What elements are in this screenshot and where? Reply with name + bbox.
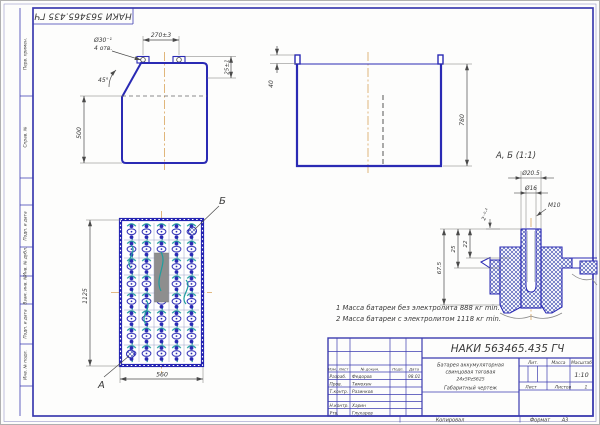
top-dim-length: 1125 xyxy=(82,288,89,304)
margin-label-perv-primen: Перв. примен. xyxy=(23,38,29,70)
hdr-data: Дата xyxy=(408,366,420,371)
row-name-tkontr: Разинков xyxy=(352,389,373,395)
row-name-utv: Глухарев xyxy=(352,410,373,416)
row-name-prov: Тимохин xyxy=(352,381,372,387)
sheets-label: Листов xyxy=(554,384,572,390)
row-name-razrab: Федоров xyxy=(352,374,372,380)
side-lip-left xyxy=(295,55,300,64)
detail-thread-label: M10 xyxy=(548,203,561,209)
detail-dim-25: 25 xyxy=(451,245,457,253)
detail-title: А, Б (1:1) xyxy=(495,151,536,161)
front-hole-qty-label: 4 отв. xyxy=(94,45,112,52)
front-chamfer-label: 45° xyxy=(98,77,109,84)
top-dim-width: 560 xyxy=(156,372,168,379)
format-value: А3 xyxy=(561,418,569,424)
row-date-razrab: 98.01 xyxy=(408,374,421,380)
part-name-line2: свинцовая тяговая xyxy=(446,370,496,376)
note-line-2: 2 Масса батареи с электролитом 1118 кг m… xyxy=(336,315,501,323)
mass-label: Масса xyxy=(552,360,566,366)
front-dim-height: 500 xyxy=(76,127,83,139)
side-lip-right xyxy=(438,55,443,64)
row-role-razrab: Разраб. xyxy=(330,374,347,380)
hdr-list: Лист xyxy=(338,366,349,371)
detail-dim-22: 22 xyxy=(463,240,469,248)
detail-dim-67-5: 67.5 xyxy=(437,261,443,274)
margin-label-sprav-no: Справ. № xyxy=(23,126,29,147)
top-stamp: НАКИ 563465.435 ГЧ xyxy=(34,11,131,21)
margin-label-podp-data-1: Подп. и дата xyxy=(23,211,29,241)
view-label-a: А xyxy=(97,380,105,391)
drawing-type: Габаритный чертеж xyxy=(444,386,498,392)
row-role-nkontr: Н.контр. xyxy=(330,403,349,409)
note-line-1: 1 Масса батареи без электролита 888 кг m… xyxy=(336,304,500,312)
row-name-nkontr: Харин xyxy=(351,403,366,409)
detail-dia-outer: Ø20.5 xyxy=(521,170,540,177)
terminal-lug-left xyxy=(500,247,521,313)
side-dim-lip: 40 xyxy=(268,80,275,88)
front-dim-terminal: 25±1 xyxy=(225,59,231,74)
hdr-izm: Изм. xyxy=(328,366,337,371)
battery-nameplate xyxy=(155,253,169,302)
main-terminal-b xyxy=(189,227,197,235)
view-label-b: Б xyxy=(219,196,226,207)
front-hole-dia-label: Ø30⁻¹ xyxy=(93,37,113,44)
scale-label: Масштаб xyxy=(571,360,592,366)
margin-label-inv-podl: Инв. № подл. xyxy=(23,350,29,380)
stamp-designation: НАКИ 563465.435 ГЧ xyxy=(34,11,131,21)
margin-label-podp-data-2: Подп. и дата xyxy=(23,309,29,339)
front-dim-holes-pitch: 270±3 xyxy=(151,32,171,39)
drawing-sheet: Перв. примен. Справ. № Подп. и дата Инв.… xyxy=(0,0,600,425)
margin-label-inv-dubl: Инв. № дубл. xyxy=(23,247,29,276)
lit-label: Лит. xyxy=(527,360,538,366)
row-role-utv: Утв. xyxy=(330,410,339,416)
sheet-label: Лист xyxy=(524,384,537,390)
row-role-tkontr: Т.контр. xyxy=(330,389,349,395)
designation: НАКИ 563465.435 ГЧ xyxy=(451,343,565,355)
scale-value: 1:10 xyxy=(574,371,588,379)
sheets-value: 1 xyxy=(585,384,588,390)
copied-label: Копировал xyxy=(436,418,465,424)
hdr-doc: № докум. xyxy=(360,366,380,371)
part-name-line3: 24х5PzS625 xyxy=(456,377,484,383)
hdr-podp: Подп. xyxy=(392,366,404,371)
side-dim-height: 780 xyxy=(459,114,466,126)
margin-label-vzam-inv: Взам. инв. № xyxy=(23,275,29,305)
detail-dia-inner: Ø16 xyxy=(524,185,537,192)
row-role-prov: Пров. xyxy=(330,381,343,387)
part-name-line1: Батарея аккумуляторная xyxy=(437,363,504,369)
drawing-canvas: Перв. примен. Справ. № Подп. и дата Инв.… xyxy=(0,0,600,425)
format-label: Формат xyxy=(530,418,551,424)
